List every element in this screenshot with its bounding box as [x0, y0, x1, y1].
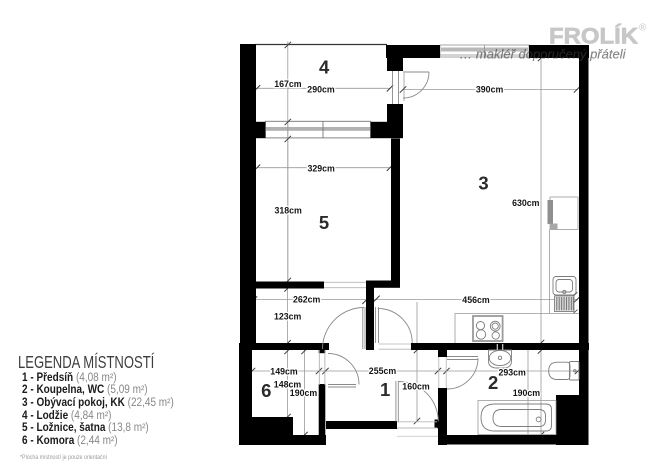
svg-text:390cm: 390cm [476, 84, 504, 94]
svg-text:®: ® [639, 23, 647, 34]
svg-text:293cm: 293cm [498, 367, 526, 377]
svg-text:3: 3 [478, 172, 488, 193]
svg-text:2: 2 [488, 372, 498, 393]
svg-text:630cm: 630cm [512, 198, 540, 208]
svg-text:4: 4 [319, 56, 330, 77]
svg-text:1: 1 [380, 379, 390, 400]
svg-text:262cm: 262cm [293, 294, 321, 304]
svg-text:160cm: 160cm [402, 382, 430, 392]
svg-text:… makléř doporučený přáteli: … makléř doporučený přáteli [459, 46, 626, 61]
svg-text:456cm: 456cm [462, 295, 490, 305]
svg-text:167cm: 167cm [274, 79, 302, 89]
svg-text:290cm: 290cm [307, 85, 335, 95]
svg-text:190cm: 190cm [513, 388, 541, 398]
svg-text:318cm: 318cm [274, 206, 302, 216]
svg-text:FROLÍK: FROLÍK [549, 24, 638, 49]
svg-text:5: 5 [319, 212, 329, 233]
svg-text:255cm: 255cm [369, 366, 397, 376]
svg-text:329cm: 329cm [307, 163, 335, 173]
svg-text:190cm: 190cm [290, 388, 318, 398]
svg-text:123cm: 123cm [274, 311, 302, 321]
